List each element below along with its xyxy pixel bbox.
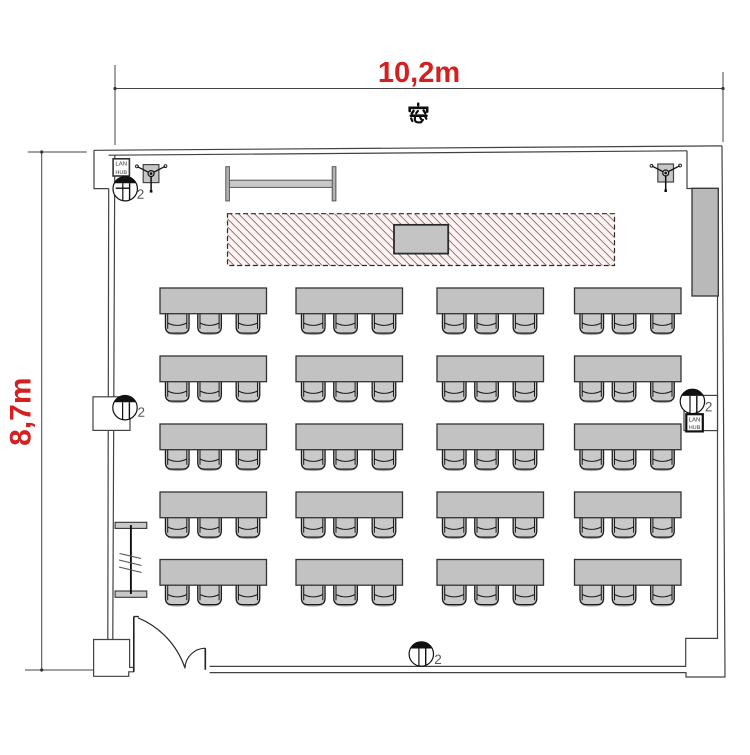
svg-text:2: 2 <box>137 187 145 202</box>
svg-text:8,7m: 8,7m <box>5 378 38 446</box>
svg-text:10,2m: 10,2m <box>378 57 460 89</box>
svg-text:LAN: LAN <box>689 417 701 423</box>
svg-text:2: 2 <box>434 652 442 667</box>
svg-text:HUB: HUB <box>689 425 701 431</box>
svg-text:LAN: LAN <box>115 161 127 167</box>
svg-text:2: 2 <box>137 405 145 420</box>
svg-text:2: 2 <box>705 399 713 414</box>
svg-text:HUB: HUB <box>115 170 127 176</box>
